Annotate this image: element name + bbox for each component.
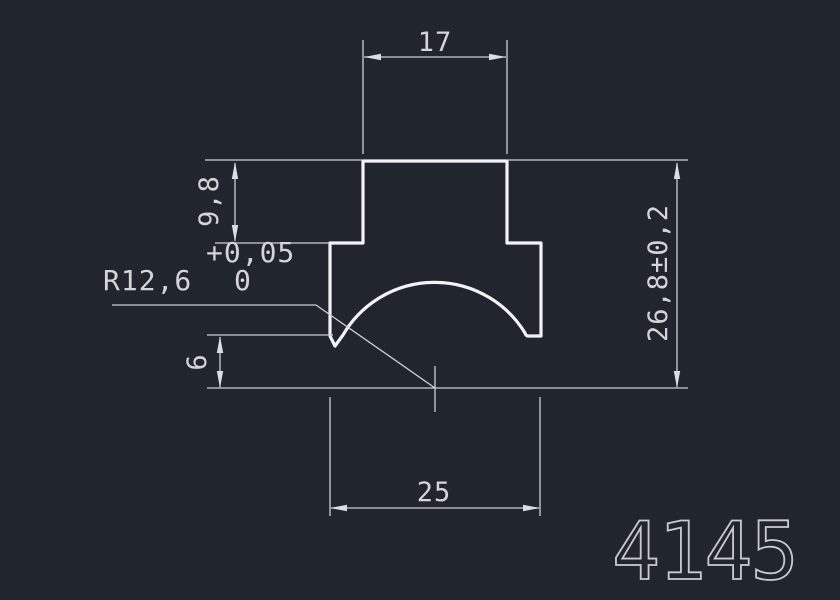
dimension-and-extension-lines (112, 40, 688, 516)
dim-top-width-label: 17 (405, 29, 465, 57)
tolerance-upper-label: +0,05 (206, 238, 295, 267)
profile-outline (330, 161, 541, 346)
dim-overall-height-label: 26,8±0,2 (645, 204, 673, 342)
part-number: 4145 (612, 512, 812, 592)
tolerance-lower-label: 0 (234, 266, 252, 295)
radius-label: R12,6 (103, 266, 192, 295)
dim-base-width-label: 25 (404, 479, 464, 507)
dim-foot-height-label: 6 (184, 353, 212, 370)
cad-drawing-canvas: 17 9,8 +0,05 0 R12,6 6 26,8±0,2 25 4145 (0, 0, 840, 600)
dim-step-height-label: 9,8 (196, 175, 224, 227)
